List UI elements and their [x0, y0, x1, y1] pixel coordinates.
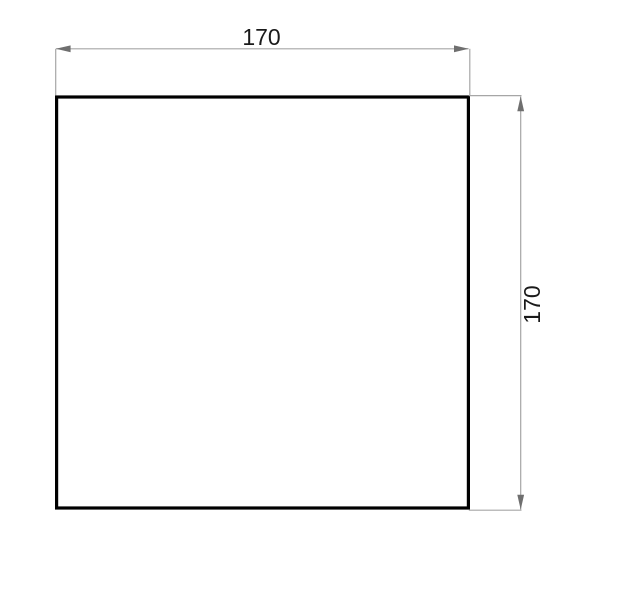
svg-text:170: 170 [242, 24, 280, 50]
svg-text:170: 170 [519, 285, 545, 323]
